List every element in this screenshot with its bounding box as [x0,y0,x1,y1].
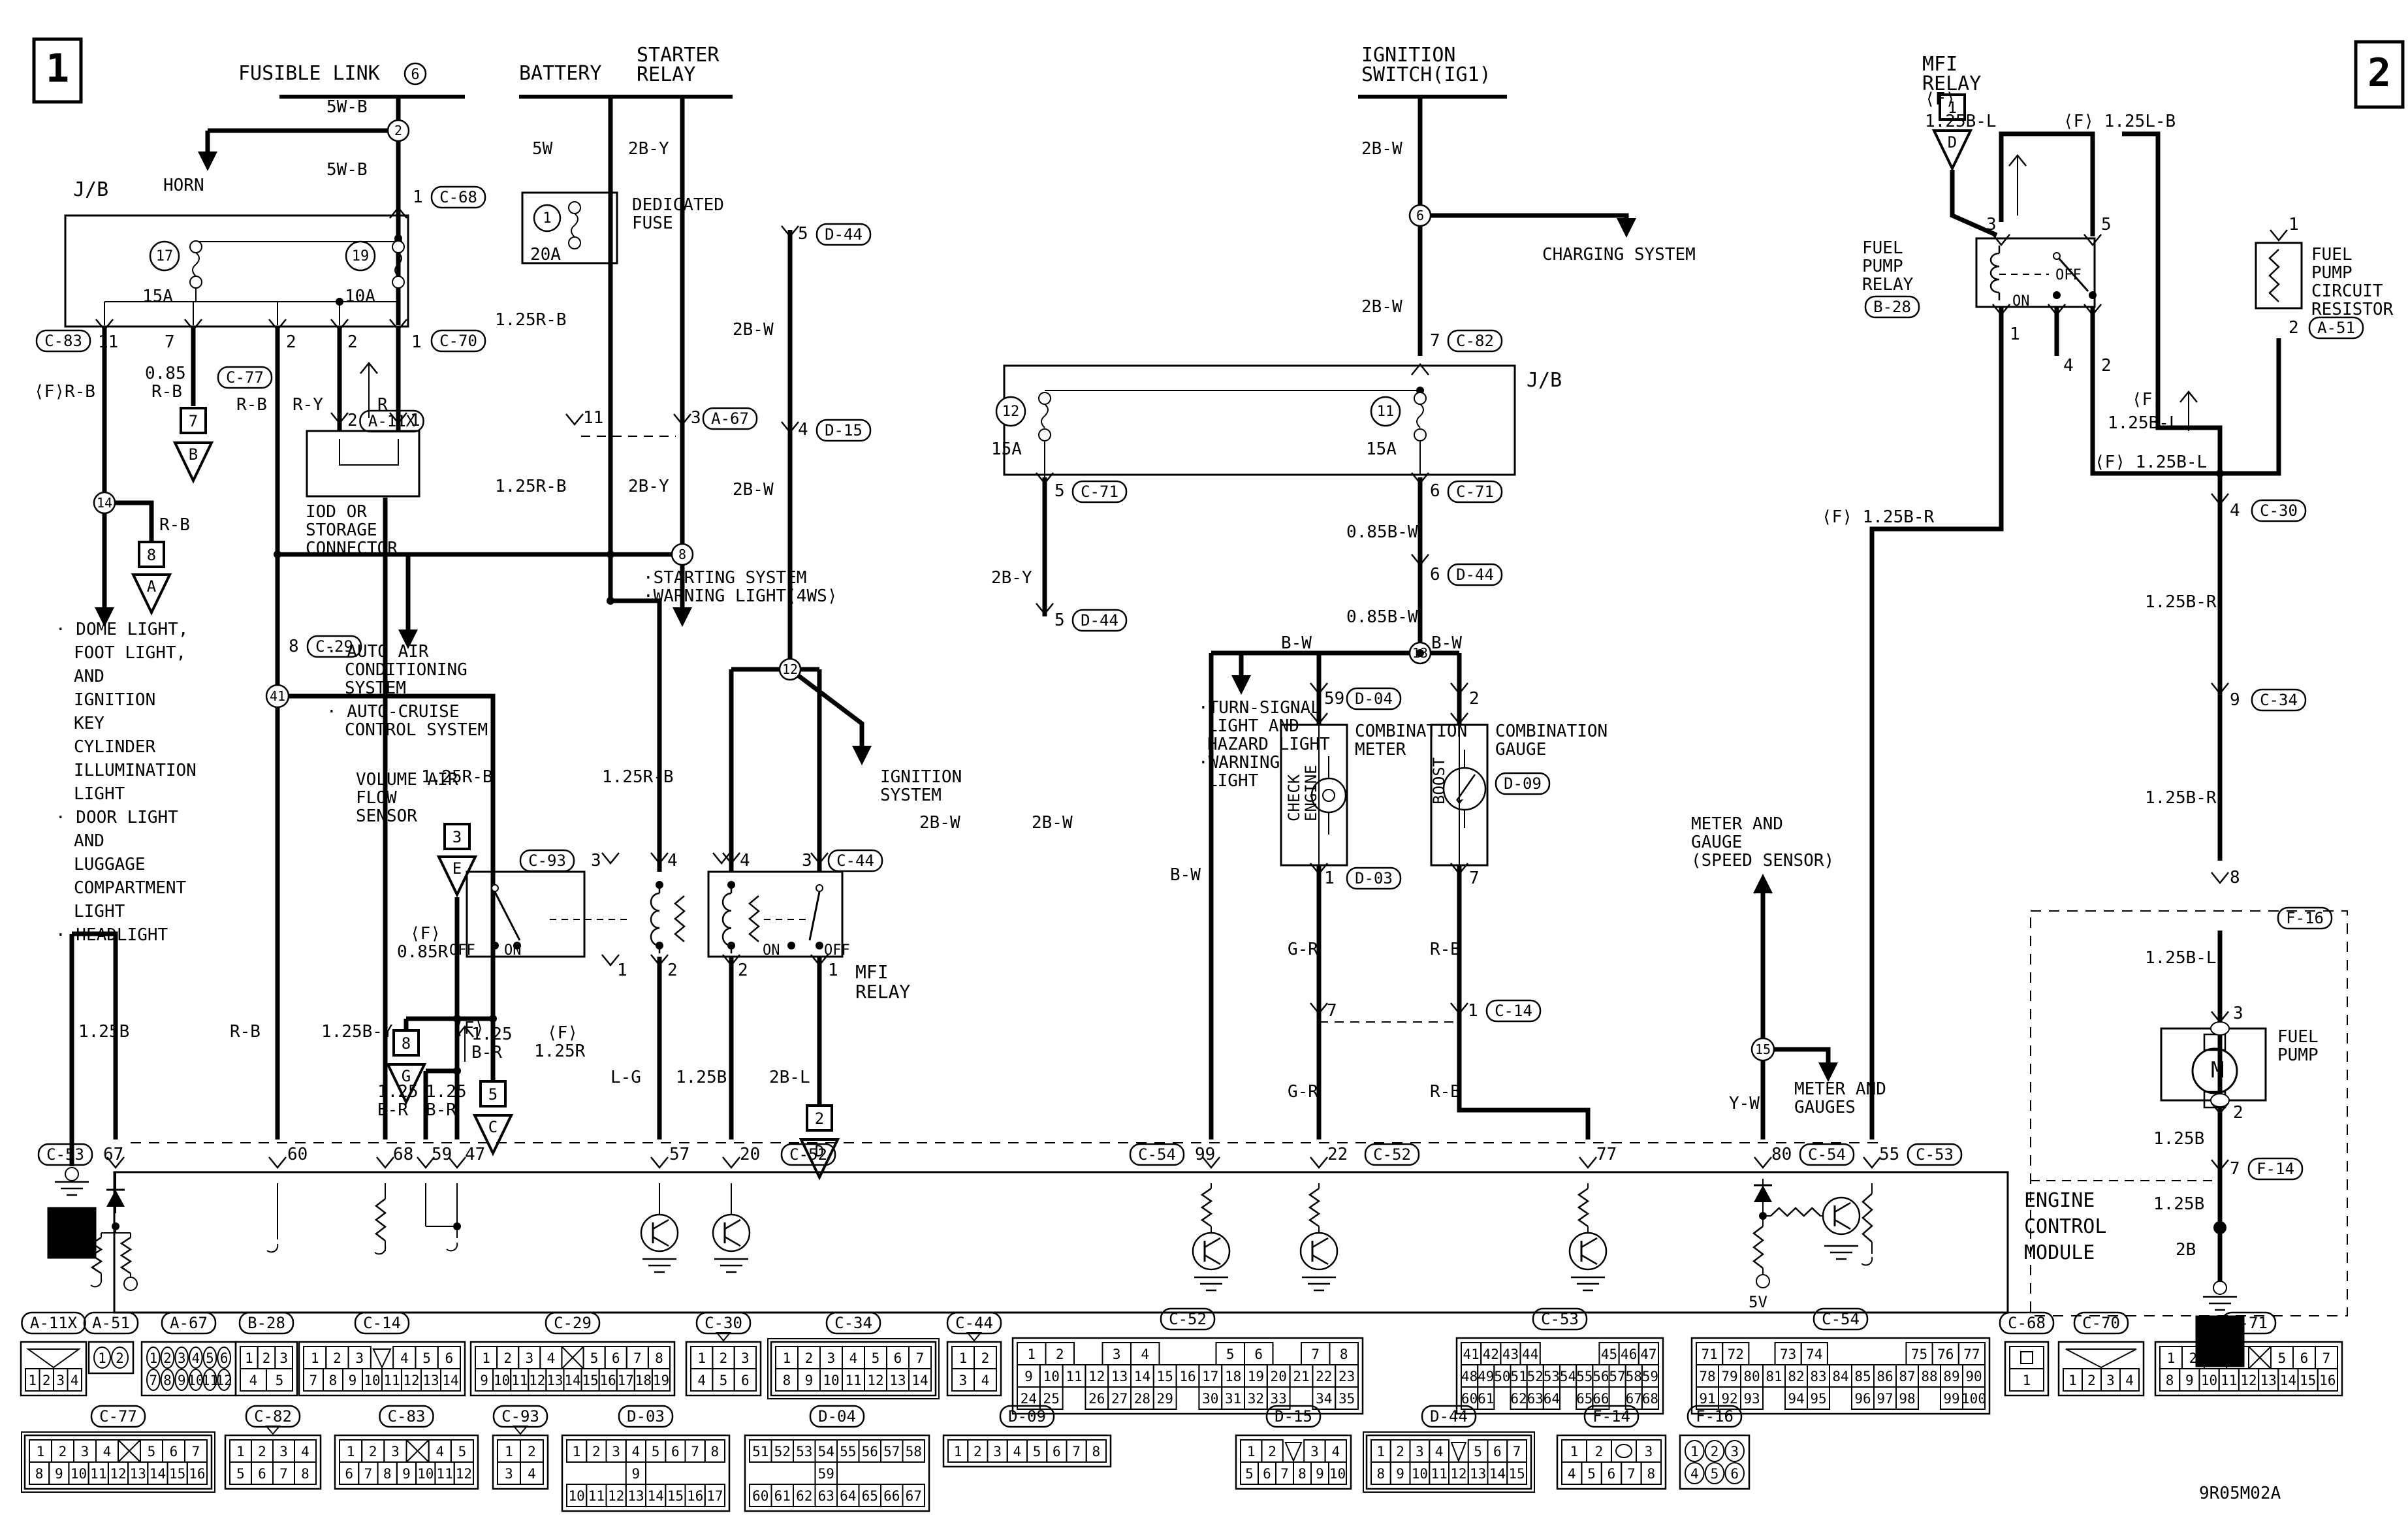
text-label: ⟨F⟩ [410,924,441,944]
connector-pin-number: 54 [818,1444,834,1459]
connector-pin-number: 2 [163,1350,172,1366]
connector-pin-number: 19 [1248,1369,1264,1384]
connector-tag-label: F-14 [1592,1407,1630,1426]
text-label: MFI [855,961,889,983]
text-label: BATTERY [519,62,601,85]
connector-pin-number: 3 [279,1444,288,1459]
text-label: RELAY [855,981,910,1002]
connector-pin-number: 3 [1310,1444,1319,1459]
connector-pin-number: 61 [774,1488,791,1504]
connector-pin-number: 13 [547,1373,563,1388]
connector-tag-label: D-09 [1008,1407,1046,1426]
text-label: 3 [591,851,601,870]
connector-pin-number: 4 [1013,1444,1022,1459]
connector-key [2066,1349,2136,1367]
connector-pin-number: 3 [279,1350,288,1366]
connector-pin-number: 1 [573,1444,581,1459]
pump-terminal [2211,1094,2229,1107]
switch-pivot [492,885,498,891]
connector-pin-number: 1 [783,1350,791,1366]
label: 6 [411,67,419,83]
connector-pin-number: 3 [612,1444,620,1459]
resistor [1310,1188,1319,1226]
text-label: Y-W [1729,1094,1760,1113]
connector-pin-number: 12 [1088,1369,1105,1384]
connector-pin-number: 2 [720,1350,728,1366]
connector-tag-label: A-11X [30,1314,78,1332]
splice-blob [2213,1221,2226,1234]
resistor [1202,1188,1211,1226]
flow-arrow [1231,675,1251,695]
connector-pin-number: 49 [1478,1369,1494,1384]
connector-pin-number: 1 [482,1350,490,1366]
connector-pin-number: 1 [28,1373,37,1388]
text-label: 2 [286,332,296,352]
text-label: 1.25B-L [1925,112,1997,131]
terminal-circle [1756,1275,1769,1288]
pin-arrow [651,1157,668,1168]
connector-tag-label: B-28 [1873,298,1911,316]
text-label: CYLINDER [74,737,156,757]
text-label: RESISTOR [2311,300,2394,319]
connector-tag-label: C-53 [1541,1310,1579,1328]
connector-pin-number: 17 [1202,1369,1218,1384]
flow-arrow [198,151,217,171]
text-label: J/B [1527,369,1562,392]
connector-pin-number: 9 [1024,1369,1033,1384]
text-label: CIRCUIT [2311,281,2383,301]
text-label: CHARGING SYSTEM [1542,245,1696,264]
relay-coil [1991,253,1999,293]
connector-pin-number: 9 [632,1466,641,1482]
connector-pin-number: 4 [981,1373,990,1388]
text-label: 5 [1054,481,1065,501]
connector-tag-label: C-29 [554,1314,592,1332]
text-label: 1.25R-B [602,767,674,787]
diagram-canvas: FUSIBLE LINK5W-BHORN5W-B1J/B15A10ABATTER… [0,0,2408,1530]
junction-dot [1759,1212,1767,1220]
connector-pin-number: 2 [503,1350,512,1366]
connector-pin-number: 30 [1202,1391,1218,1407]
junction-dot [2089,291,2097,299]
connector-pin-number: 6 [1608,1466,1616,1482]
text-label: B-W [1431,633,1462,653]
pin-arrow [723,1157,740,1168]
wire [1420,215,1626,230]
text-label: SWITCH(IG1) [1361,63,1491,86]
connector-tag-label: C-52 [1373,1145,1411,1164]
text-label: 2B-W [733,320,774,340]
connector-pin-number: 48 [1461,1369,1478,1384]
connector-pin-number: 7 [1280,1466,1289,1482]
connector-tag-label: C-34 [2260,691,2298,709]
connector-pin-number: 54 [1560,1369,1576,1384]
ref-triangle-letter: D [1948,133,1957,151]
connector-pin-number: 2 [981,1350,990,1366]
connector-pin-number: 4 [697,1373,706,1388]
connector-tag-label: C-34 [834,1314,872,1332]
fuse-terminal [1414,429,1426,441]
fuse-terminal [392,276,404,288]
ref-triangle-letter: D [815,1142,824,1160]
connector-pin-number: 6 [258,1466,266,1482]
text-label: 4 [798,420,808,439]
connector-tag-label: F-16 [1696,1407,1734,1426]
connector-pin-number: 60 [1461,1391,1478,1407]
connector-pin-number: 2 [42,1373,51,1388]
wire [2223,338,2279,473]
component-box [2256,243,2302,308]
connector-pin-number: 83 [1810,1369,1826,1384]
text-label: 2B-W [919,813,960,833]
resistor [675,896,684,942]
wire [2001,134,2093,236]
text-label: ⟨F⟩R-B [34,382,95,402]
pin-arrow [566,414,583,424]
connector-pin-number: 5 [652,1444,660,1459]
connector-pin-number: 14 [150,1466,166,1482]
connector-pin-number: 28 [1134,1391,1150,1407]
relay-coil [723,893,731,946]
text-label: 9 [2230,690,2240,710]
connector-pin-number: 52 [1527,1369,1544,1384]
connector-pin-number: 11 [383,1373,400,1388]
connector-pin-number: 5 [1587,1466,1596,1482]
fuse-terminal [190,276,202,288]
connector-pin-number: 84 [1832,1369,1848,1384]
connector-tag-label: C-93 [501,1407,539,1426]
connector-pin-number: 13 [627,1488,644,1504]
connector-pin-number: 4 [849,1350,858,1366]
connector-pin-number: 23 [1339,1369,1355,1384]
ref-triangle-letter: A [147,577,157,596]
connector-pin-number: 10 [823,1373,839,1388]
connector-pin-number: 5 [236,1466,245,1482]
connector-pin-number: 89 [1943,1369,1959,1384]
connector-pin-number: 15 [667,1488,684,1504]
connector-pin-number: 8 [1377,1466,1386,1482]
ref-box-number: 2 [815,1109,824,1128]
connector-pin-number: 3 [525,1350,533,1366]
connector-pin-number: 59 [1642,1369,1658,1384]
connector-tag-label: D-04 [818,1407,856,1426]
connector-pin-number: 57 [883,1444,900,1459]
connector-pin-number: 5 [206,1350,214,1366]
node-number: 8 [678,547,686,562]
connector-pin-number: 63 [818,1488,834,1504]
connector-pin-number: 10 [1043,1369,1060,1384]
text-label: 4 [2230,501,2240,520]
text-label: 0.85B-W [1346,607,1418,627]
connector-pin-number: 74 [1806,1347,1822,1362]
text-label: IOD OR [306,502,367,522]
connector-pin-number: 4 [192,1350,200,1366]
connector-pin-number: 9 [1396,1466,1404,1482]
text-label: 2B-Y [628,139,669,159]
connector-pin-number: 1 [2023,1373,2031,1388]
transistor [713,1215,750,1251]
connector-pin-number: 5 [148,1444,156,1459]
connector-pin-number: 1 [2167,1350,2176,1366]
text-label: 2 [347,411,358,430]
connector-pin-number: 16 [687,1488,703,1504]
connector-key [1451,1442,1466,1461]
connector-pin-number: 15 [582,1373,598,1388]
connector-pin-number: 3 [993,1444,1002,1459]
ref-triangle-letter: E [452,859,462,878]
connector-pin-number: 6 [170,1444,178,1459]
text-label: J/B [73,178,108,201]
text-label: IGNITION [74,690,155,710]
connector-pin-number: 53 [1544,1369,1560,1384]
connector-pin-number: 2 [59,1444,67,1459]
wire [653,1220,669,1229]
junction-dot [274,550,281,558]
connector-pin-number: 45 [1601,1347,1617,1362]
text-label: RELAY [1862,275,1914,295]
connector-key [373,1349,390,1367]
node-number: 19 [352,248,370,264]
page-marker: 6 [61,1211,83,1253]
text-label: G-R [1288,940,1318,959]
connector-pin-number: 62 [1510,1391,1527,1407]
connector-pin-number: 4 [528,1466,536,1482]
flow-arrow [1617,218,1636,238]
text-label: G-R [1288,1082,1318,1102]
connector-pin-number: 29 [1157,1391,1173,1407]
connector-tag-label: A-67 [711,409,749,428]
text-label: 10A [345,287,375,306]
connector-pin-number: 9 [1316,1466,1324,1482]
connector-pin-number: 15 [1157,1369,1173,1384]
connector-pin-number: 6 [671,1444,680,1459]
connector-pin-number: 14 [647,1488,663,1504]
text-label: 1.25B [2153,1129,2204,1149]
junction-dot [607,550,614,558]
connector-pin-number: 6 [741,1373,750,1388]
connector-pin-number: 3 [1730,1444,1739,1459]
connector-pin-number: 13 [130,1466,146,1482]
connector-pin-number: 59 [818,1466,834,1482]
text-label: METER AND [1691,814,1783,834]
text-label: 59 [1324,689,1344,709]
wire [1312,1255,1328,1264]
text-label: 1 [411,332,422,352]
text-label: 3 [2233,1004,2243,1023]
wiring-diagram: FUSIBLE LINK5W-BHORN5W-B1J/B15A10ABATTER… [0,0,2408,1530]
connector-pin-number: 81 [1766,1369,1782,1384]
connector-pin-number: 5 [276,1373,284,1388]
connector-pin-number: 10 [568,1488,584,1504]
text-label: 5 [798,224,808,244]
connector-pin-number: 20 [1271,1369,1287,1384]
text-label: 5 [1054,611,1065,630]
connector-pin-number: 18 [635,1373,652,1388]
connector-pin-number: 51 [1510,1369,1527,1384]
connector-pin-number: 1 [311,1350,319,1366]
connector-pin-number: 50 [1494,1369,1510,1384]
text-label: 9R05M02A [2199,1484,2281,1503]
text-label: 59 [432,1145,452,1164]
connector-pin-number: 10 [1412,1466,1428,1482]
text-label: ·WARNING LIGHT⟨4WS⟩ [643,586,837,606]
connector-pin-number: 13 [889,1373,906,1388]
pin-arrow [2211,872,2228,883]
page-marker: 1 [46,46,69,91]
text-label: 2B-L [769,1068,810,1087]
connector-pin-number: 2 [592,1444,601,1459]
connector-pin-number: 8 [1092,1444,1101,1459]
text-label: 1.25B-R [2145,592,2217,612]
connector-pin-number: 32 [1248,1391,1264,1407]
connector-pin-number: 3 [1416,1444,1424,1459]
resistor [376,1199,385,1241]
ref-box-number: 8 [147,546,156,564]
text-label: 80 [1771,1145,1792,1164]
connector-pin-number: 90 [1965,1369,1982,1384]
junction-dot [112,1222,119,1230]
node-number: 1 [543,210,551,227]
connector-pin-number: 43 [1502,1347,1519,1362]
connector-pin-number: 76 [1937,1347,1954,1362]
connector-tag-label: A-51 [2317,319,2355,337]
transistor [1301,1233,1337,1269]
connector-pin-number: 12 [456,1466,472,1482]
flow-arrow [852,746,872,765]
pin-arrow [1754,1157,1771,1168]
connector-pin-number: 4 [103,1444,112,1459]
text-label: ⟨F⟩ 1.25B-R [1822,507,1935,527]
connector-pin-number: 7 [1311,1347,1320,1362]
connector-tag-label: D-44 [825,225,863,244]
connector-pin-number: 86 [1877,1369,1893,1384]
connector-pin-number: 35 [1339,1391,1355,1407]
text-label: 5W-B [326,160,368,180]
connector-pin-number: 3 [391,1444,400,1459]
connector-pin-number: 1 [2068,1373,2077,1388]
connector-pin-number: 66 [883,1488,900,1504]
connector-pin-number: 12 [403,1373,419,1388]
connector-pin-number: 16 [600,1373,616,1388]
flow-arrow [1753,874,1773,893]
junction-dot [336,298,343,306]
connector-pin-number: 6 [445,1350,454,1366]
text-label: 57 [669,1145,689,1164]
text-label: 1.25B [2153,1194,2204,1214]
text-label: CONTROL [2024,1215,2106,1238]
connector-pin-number: 78 [1699,1369,1715,1384]
connector-pin-number: 12 [1450,1466,1466,1482]
connector-pin-number: 14 [911,1373,928,1388]
connector-pin-number: 8 [1340,1347,1348,1362]
junction-dot [491,942,499,949]
connector-pin-number: 55 [1576,1369,1592,1384]
text-label: ⟨F⟩ [547,1023,578,1043]
connector-pin-number: 3 [2106,1373,2115,1388]
text-label: ⟨F⟩ 1.25B-L [2095,453,2207,472]
connector-pin-number: 18 [1225,1369,1241,1384]
connector-pin-number: 63 [1527,1391,1544,1407]
connector-pin-number: 55 [840,1444,856,1459]
connector-pin-number: 46 [1621,1347,1637,1362]
connector-pin-number: 6 [1263,1466,1271,1482]
connector-pin-number: 7 [279,1466,288,1482]
connector-tag-label: C-44 [955,1314,993,1332]
text-label: 7 [2230,1159,2240,1179]
connector-pin-number: 6 [1053,1444,1061,1459]
connector-tag-label: C-83 [44,332,82,350]
connector-tag-label: C-70 [2082,1314,2120,1332]
diode [106,1190,125,1207]
connector-tag-label: F-16 [2286,909,2324,927]
pigtail [1861,1257,1872,1265]
connector-pin-number: 31 [1225,1391,1241,1407]
connector-pin-number: 5 [458,1444,467,1459]
connector-tag-label: C-82 [1456,332,1494,350]
text-label: FUSE [632,214,673,233]
connector-pin-number: 3 [827,1350,836,1366]
connector-pin-number: 11 [436,1466,452,1482]
text-label: GAUGE [1691,833,1742,852]
connector-pin-number: 1 [959,1350,968,1366]
connector-key [28,1349,79,1367]
connector-pin-number: 2 [258,1444,266,1459]
text-label: 4 [2063,356,2074,375]
junction-dot [816,942,823,949]
text-label: LIGHT [74,902,125,921]
text-label: ·TURN-SIGNAL [1198,698,1321,718]
text-label: RELAY [637,63,695,86]
connector-pin-number: 2 [1711,1444,1719,1459]
connector-pin-number: 10 [494,1373,510,1388]
ref-box-number: 5 [488,1085,498,1104]
connector-pin-number: 13 [2260,1373,2277,1388]
text-label: STORAGE [306,520,377,540]
text-label: 2B [2176,1240,2196,1260]
node-number: 11 [1377,404,1395,420]
connector-pin-number: 2 [1056,1347,1064,1362]
connector-pin-number: 6 [2300,1350,2309,1366]
connector-pin-number: 8 [2166,1373,2174,1388]
connector-pin-number: 67 [1626,1391,1642,1407]
text-label: 15A [1366,439,1397,459]
wire [810,892,819,940]
connector-pin-number: 5 [720,1373,728,1388]
text-label: R-B [159,515,190,535]
text-label: PUMP [1862,257,1903,276]
connector-pin-number: 52 [774,1444,791,1459]
connector-pin-number: 2 [2189,1350,2198,1366]
connector-pin-number: 3 [56,1373,65,1388]
connector-pin-number: 51 [752,1444,768,1459]
connector-pin-number: 99 [1943,1391,1959,1407]
text-label: 0.85 [145,364,186,383]
connector-pin-number: 1 [37,1444,45,1459]
component-box [65,215,408,327]
junction-dot [787,942,795,949]
connector-cavity [2010,1347,2044,1369]
connector-tag-label: D-04 [1355,690,1393,708]
connector-pin-number: 4 [436,1444,444,1459]
connector-pin-number: 6 [345,1466,353,1482]
text-label: 3 [802,851,812,870]
connector-tag-label: C-44 [836,852,874,870]
text-label: · DOOR LIGHT [55,808,178,827]
pigtail [91,1279,101,1286]
connector-tag-label: C-70 [439,332,477,350]
connector-tag-label: C-83 [388,1407,426,1426]
ref-box-number: 7 [189,412,198,430]
